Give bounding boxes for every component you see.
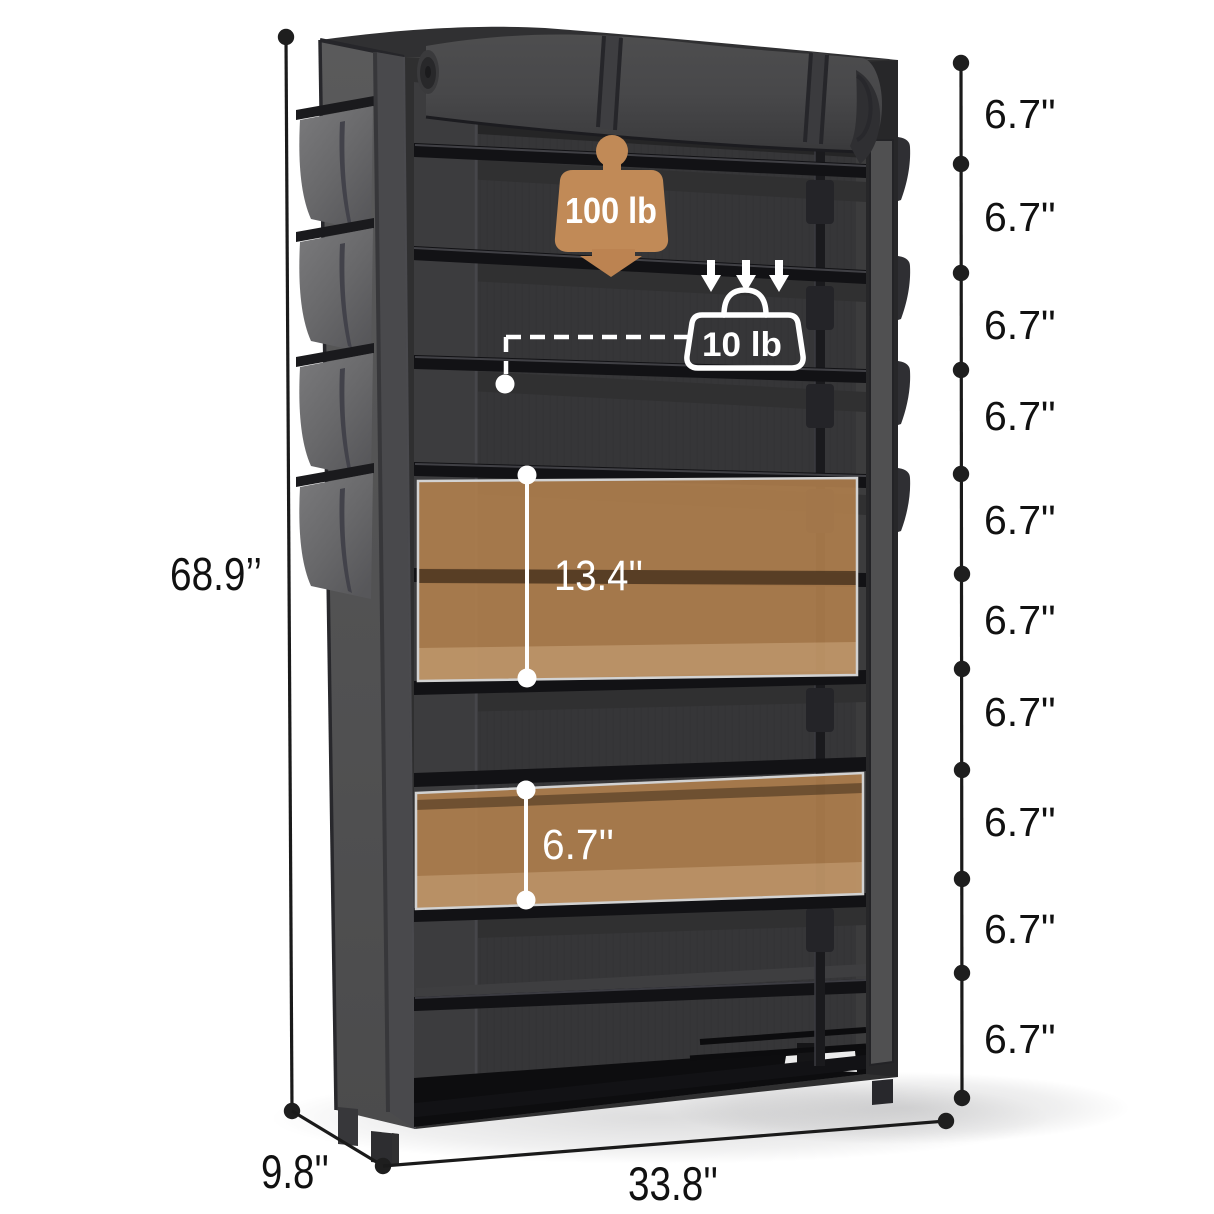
svg-text:6.7": 6.7" xyxy=(984,1016,1056,1062)
svg-text:100 lb: 100 lb xyxy=(565,190,657,231)
svg-text:6.7": 6.7" xyxy=(984,597,1056,643)
svg-text:10 lb: 10 lb xyxy=(702,326,782,364)
svg-text:6.7": 6.7" xyxy=(984,194,1056,240)
svg-text:6.7": 6.7" xyxy=(984,393,1056,439)
svg-text:6.7": 6.7" xyxy=(984,497,1056,543)
svg-text:6.7": 6.7" xyxy=(984,906,1056,952)
svg-text:6.7": 6.7" xyxy=(984,689,1056,735)
svg-text:6.7": 6.7" xyxy=(984,302,1056,348)
svg-text:6.7": 6.7" xyxy=(984,799,1056,845)
svg-text:33.8'': 33.8'' xyxy=(628,1157,718,1210)
svg-text:9.8'': 9.8'' xyxy=(261,1145,329,1198)
svg-text:6.7'': 6.7'' xyxy=(542,821,614,869)
svg-text:13.4'': 13.4'' xyxy=(554,552,643,600)
svg-text:68.9’’: 68.9’’ xyxy=(170,548,262,600)
svg-text:6.7": 6.7" xyxy=(984,91,1056,137)
